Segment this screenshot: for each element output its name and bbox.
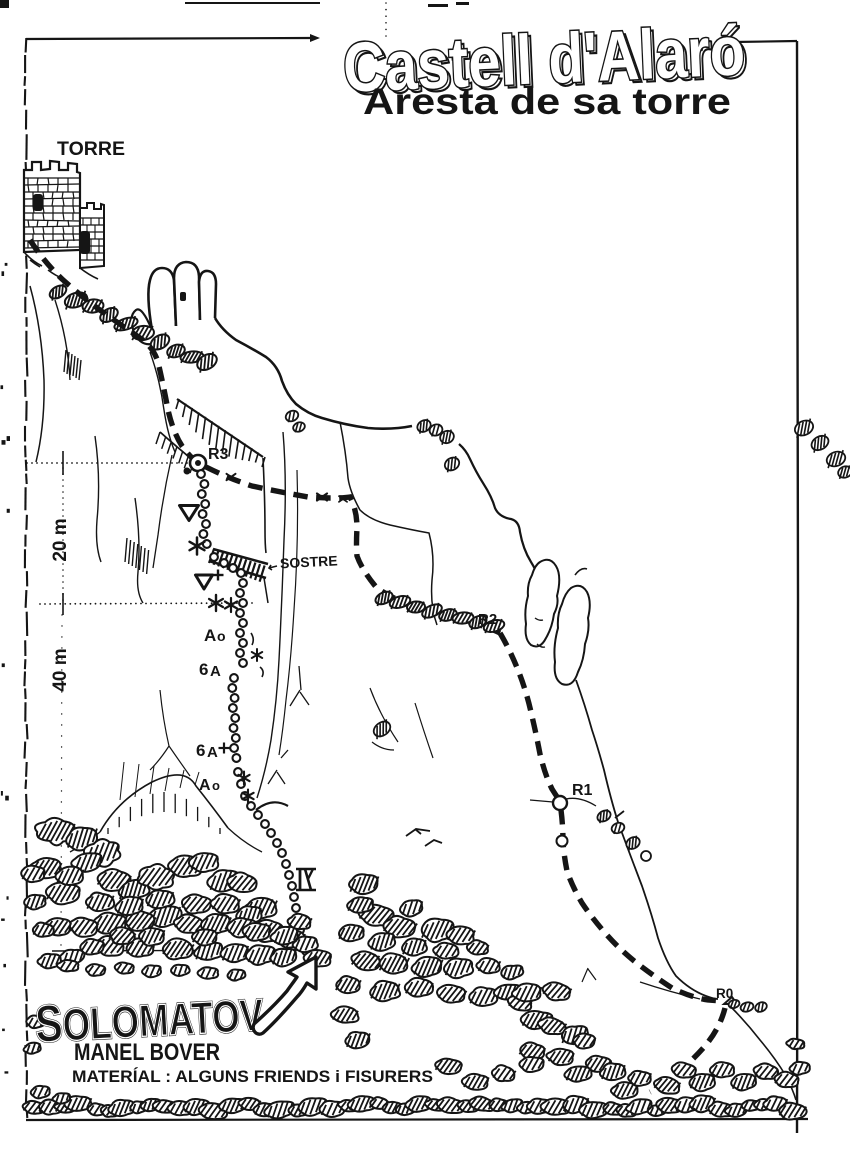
svg-text:R3: R3 xyxy=(208,446,229,463)
svg-text:R2: R2 xyxy=(478,611,497,628)
svg-text:A: A xyxy=(210,663,221,680)
svg-text:6: 6 xyxy=(196,741,205,760)
svg-text:A: A xyxy=(207,744,218,761)
svg-text:MANEL BOVER: MANEL BOVER xyxy=(74,1039,220,1066)
svg-text:Aresta de sa torre: Aresta de sa torre xyxy=(363,81,731,122)
svg-text:A: A xyxy=(199,777,211,794)
svg-text:o: o xyxy=(217,628,226,644)
svg-text:20 m: 20 m xyxy=(50,518,71,561)
svg-text:A: A xyxy=(204,626,216,645)
svg-text:6: 6 xyxy=(199,660,208,679)
svg-text:TORRE: TORRE xyxy=(57,139,125,160)
svg-text:SOSTRE: SOSTRE xyxy=(280,552,338,571)
svg-text:R1: R1 xyxy=(572,782,593,799)
svg-text:o: o xyxy=(212,778,220,793)
svg-text:MATERÍAL : ALGUNS FRIENDS i FI: MATERÍAL : ALGUNS FRIENDS i FISURERS xyxy=(72,1067,433,1086)
svg-text:40 m: 40 m xyxy=(50,648,71,691)
